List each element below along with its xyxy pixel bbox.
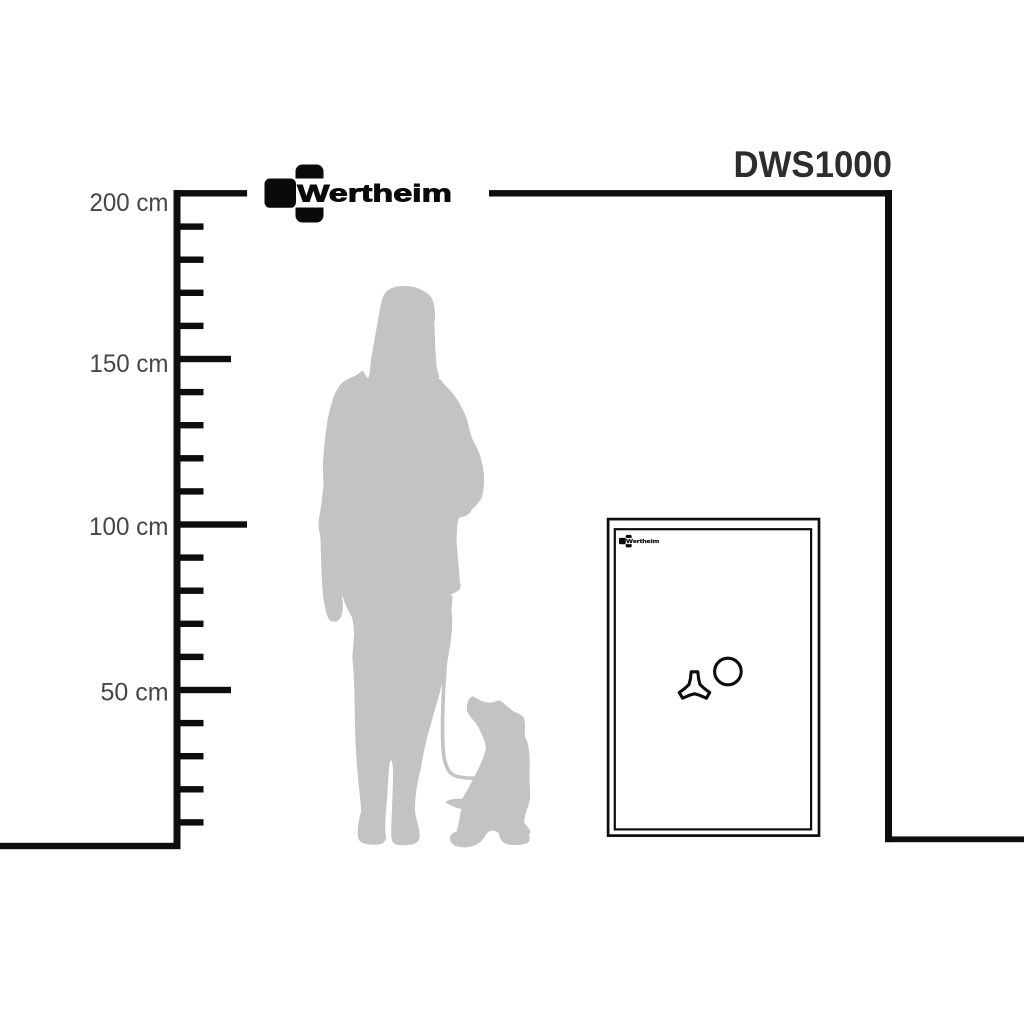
- svg-text:50 cm: 50 cm: [101, 679, 169, 707]
- svg-text:150 cm: 150 cm: [90, 350, 169, 378]
- svg-text:100 cm: 100 cm: [89, 513, 169, 541]
- svg-text:DWS1000: DWS1000: [734, 144, 893, 185]
- svg-text:200 cm: 200 cm: [90, 189, 169, 217]
- svg-text:Wertheim: Wertheim: [297, 181, 452, 208]
